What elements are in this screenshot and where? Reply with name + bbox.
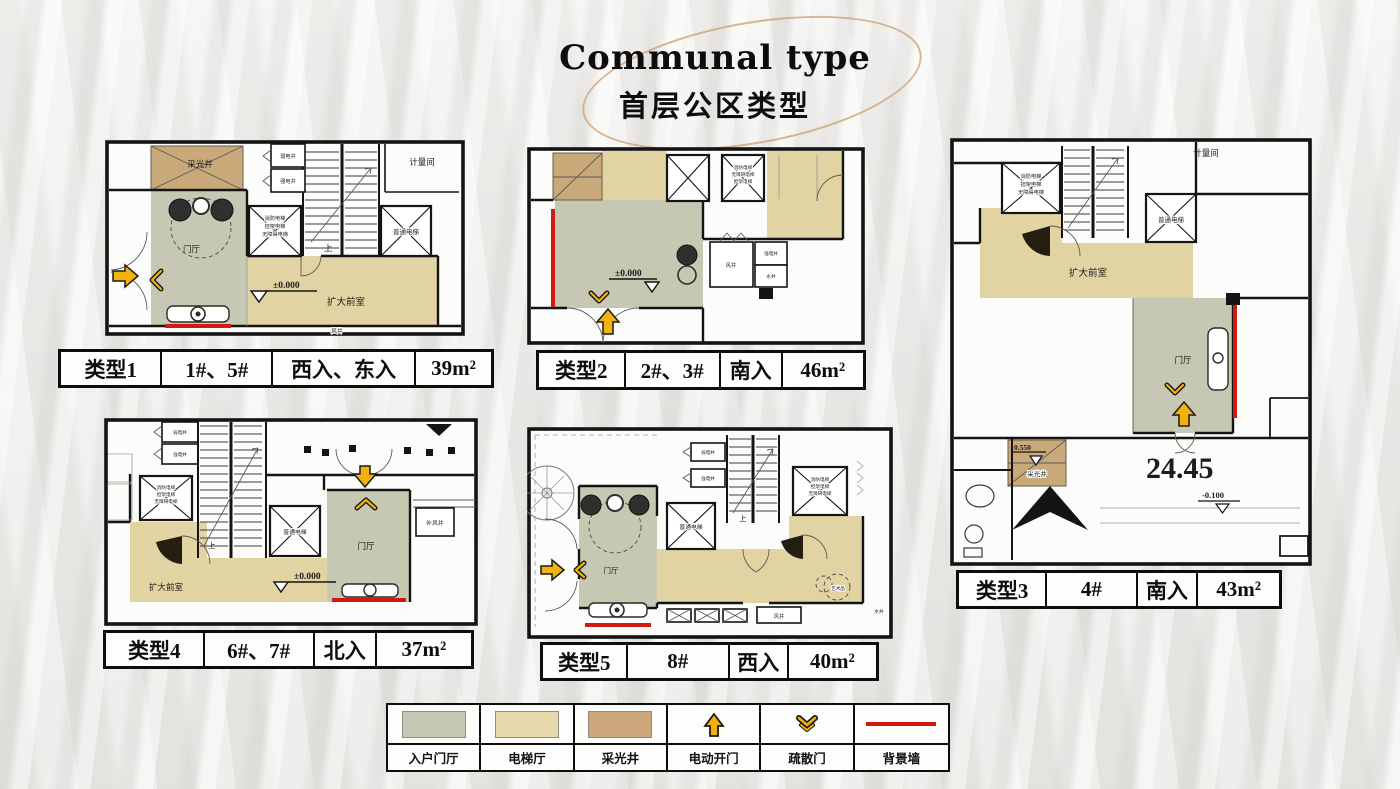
legend-label: 采光井 [575,745,668,770]
table-cell: 类型2 [539,353,626,387]
fire-elevator-label: 无障碍电梯 [155,498,178,505]
type-table-5: 类型5 8# 西入 40m² [540,642,879,681]
table-cell: 西入、东入 [273,352,416,385]
weak-shaft-label: 弱电井 [701,449,715,456]
floor-plan-5: 门厅 普通电梯 弱电井 强电井 [527,427,893,639]
light-well-label: 采光井 [1027,469,1047,478]
floor-plan-3: 消防电梯 担架电梯 无障碍电梯 普通电梯 计量间 扩大前室 门厅 [950,138,1312,566]
plan5-normal-elevator: 普通电梯 [667,503,715,549]
foyer-label: 门厅 [1174,355,1192,365]
plan4-bench [342,584,398,597]
level-label: -0.100 [1202,490,1224,500]
stairs-up-label: 上 [739,514,747,523]
fire-elevator-label: 担架电梯 [1021,180,1042,188]
meter-room-label: 计量间 [1193,148,1219,158]
legend-label: 电动开门 [668,745,761,770]
table-cell: 46m² [783,353,863,387]
fire-elevator-label: 担架电梯 [734,178,753,185]
fire-elevator-label: 无障碍电梯 [262,230,288,238]
wall-block [1226,293,1240,305]
floor-plan-1: 上 消防电梯 担架电梯 无障碍电梯 普通电梯 弱电井 强电井 计量间 [105,140,465,336]
water-shaft-label: 水井 [766,273,776,280]
table-cell: 2#、3# [626,353,721,387]
fire-elevator-label: 担架电梯 [265,222,286,230]
table-cell: 类型5 [543,645,628,678]
legend-label: 背景墙 [855,745,948,770]
foyer-label: 门厅 [604,566,619,575]
strong-shaft-label: 强电井 [173,451,187,458]
fire-elevator-label: 消防电梯 [811,476,830,483]
auto-door-arrow-icon [668,705,761,745]
legend-label: 电梯厅 [481,745,574,770]
table-cell: 北入 [315,633,377,666]
enlarged-lobby-label: 扩大前室 [327,296,365,308]
table-cell: 6#、7# [205,633,315,666]
strong-shaft-label: 强电井 [280,177,296,185]
water-shaft-label: 水井 [874,608,884,615]
table-cell: 43m² [1198,573,1279,606]
wind-shaft-label: 风井 [774,612,784,620]
wind-shaft-label: 风井 [726,261,736,269]
plan5-fire-elevator: 消防电梯 担架电梯 无障碍电梯 [793,467,847,515]
table-cell: 39m² [416,352,491,385]
legend: 入户门厅 电梯厅 采光井 电动开门 疏散门 背景墙 [386,703,950,772]
type-table-2: 类型2 2#、3# 南入 46m² [536,350,866,390]
strong-shaft-label: 强电井 [764,250,778,257]
plan3-fire-elevator: 消防电梯 担架电梯 无障碍电梯 [1002,163,1060,213]
foyer-label: 门厅 [183,244,201,254]
legend-label: 入户门厅 [388,745,481,770]
plan3-bench [1208,328,1228,390]
art-label: 艺术品 [831,585,845,592]
fire-elevator-label: 无障碍电梯 [1018,188,1044,196]
table-cell: 类型3 [959,573,1047,606]
legend-label: 疏散门 [761,745,854,770]
normal-elevator-label: 普通电梯 [393,227,420,236]
stairs-up-label: 上 [324,243,333,253]
stairs-up-label: 上 [208,541,216,550]
fire-elevator-label: 无障碍电梯 [732,171,755,178]
type-table-3: 类型3 4# 南入 43m² [956,570,1282,609]
wind-shaft-label: 风井 [331,327,343,335]
plan4-makeup-air: 补风井 [416,508,454,536]
normal-elevator-label: 普通电梯 [1158,215,1185,224]
dimension-2445: 24.45 [1146,452,1214,485]
weak-shaft-label: 弱电井 [280,152,296,160]
evac-door-chevron-icon [761,705,854,745]
normal-elevator-label: 普通电梯 [679,523,702,531]
accent-wall-line-icon [855,705,948,745]
level-label: 0.550 [1014,443,1031,452]
level-label: ±0.000 [273,281,300,291]
plan4-normal-elevator: 普通电梯 [270,506,320,556]
fire-elevator-label: 消防电梯 [157,484,176,491]
plan4-fire-elevator: 消防电梯 担架电梯 无障碍电梯 [140,476,192,520]
table-cell: 南入 [1138,573,1199,606]
title-chinese: 首层公区类型 [545,83,885,125]
table-cell: 类型1 [61,352,162,385]
plan2-fire-elevator: 消防电梯 无障碍电梯 担架电梯 [722,155,764,201]
table-cell: 37m² [377,633,471,666]
enlarged-lobby-label: 扩大前室 [149,582,184,592]
plan1-fire-elevator: 消防电梯 担架电梯 无障碍电梯 [249,206,301,256]
fire-elevator-label: 消防电梯 [734,164,753,171]
table-cell: 1#、5# [162,352,273,385]
plan3-normal-elevator: 普通电梯 [1146,194,1196,242]
fire-elevator-label: 无障碍电梯 [809,490,832,497]
slide: Communal type 首层公区类型 [0,0,1400,789]
fire-elevator-label: 担架电梯 [811,483,830,490]
foyer-label: 门厅 [357,541,375,551]
legend-swatch-entry-foyer [388,705,481,745]
table-cell: 8# [628,645,730,678]
light-well-label: 采光井 [187,159,213,169]
floor-plan-4: 弱电井 强电井 消防电梯 担架电梯 无障碍电梯 上 普通电 [104,418,478,626]
strong-shaft-label: 强电井 [701,475,715,482]
plan4-stairs: 上 [198,422,266,558]
weak-shaft-label: 弱电井 [173,429,187,436]
makeup-air-label: 补风井 [426,519,444,527]
type-table-1: 类型1 1#、5# 西入、东入 39m² [58,349,494,388]
table-cell: 西入 [730,645,789,678]
page-title: Communal type 首层公区类型 [545,38,885,125]
enlarged-lobby-label: 扩大前室 [1069,267,1107,279]
floor-plan-2: 消防电梯 无障碍电梯 担架电梯 风井 强电井 水井 ±0.000 [527,147,865,345]
normal-elevator-label: 普通电梯 [283,528,306,536]
fire-elevator-label: 担架电梯 [157,491,176,498]
table-cell: 类型4 [106,633,205,666]
level-label: ±0.000 [294,572,321,582]
table-cell: 南入 [721,353,783,387]
legend-swatch-elevator-hall [481,705,574,745]
title-english: Communal type [545,38,885,78]
legend-swatch-light-well [575,705,668,745]
table-cell: 4# [1047,573,1137,606]
plan1-normal-elevator: 普通电梯 [381,206,431,256]
type-table-4: 类型4 6#、7# 北入 37m² [103,630,474,669]
fire-elevator-label: 消防电梯 [265,214,286,222]
plan2-elevator-a [667,155,709,201]
meter-room-label: 计量间 [409,157,435,167]
level-label: ±0.000 [615,269,642,279]
table-cell: 40m² [789,645,876,678]
fire-elevator-label: 消防电梯 [1021,172,1042,180]
